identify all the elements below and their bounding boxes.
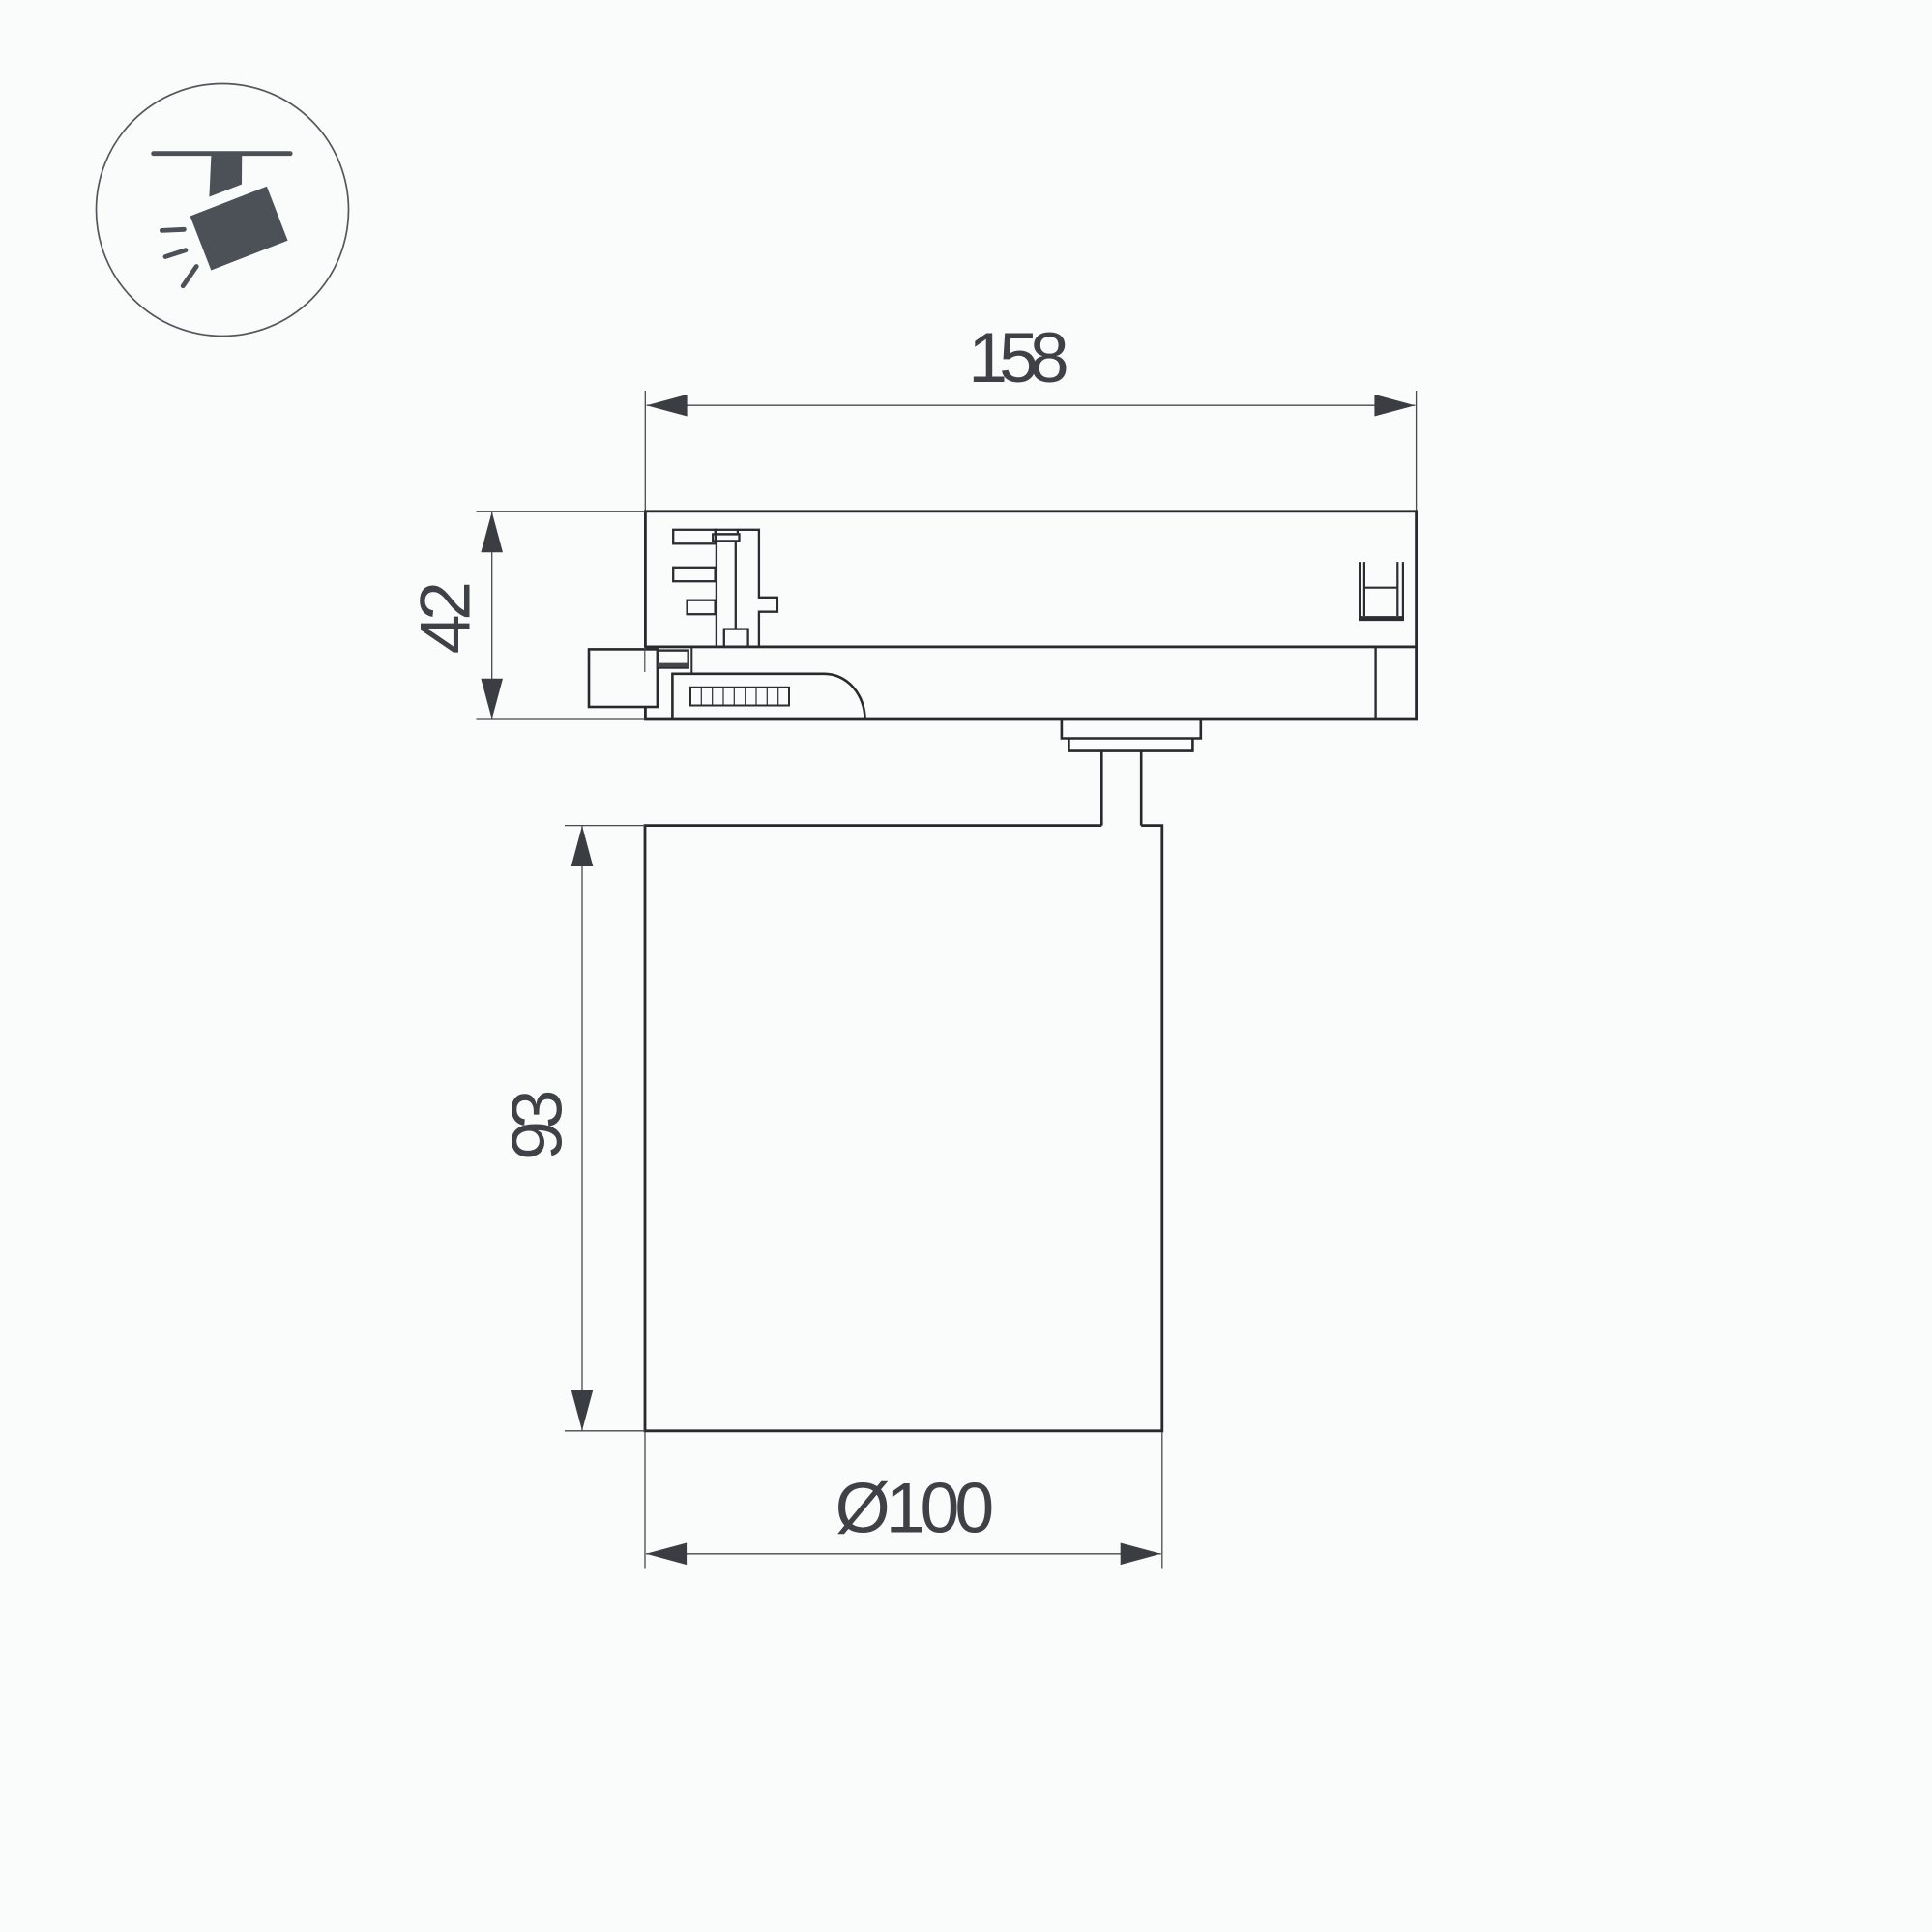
svg-text:93: 93 [498,1093,577,1160]
svg-text:Ø100: Ø100 [835,1469,992,1548]
svg-text:158: 158 [968,318,1067,397]
svg-text:42: 42 [405,584,484,654]
